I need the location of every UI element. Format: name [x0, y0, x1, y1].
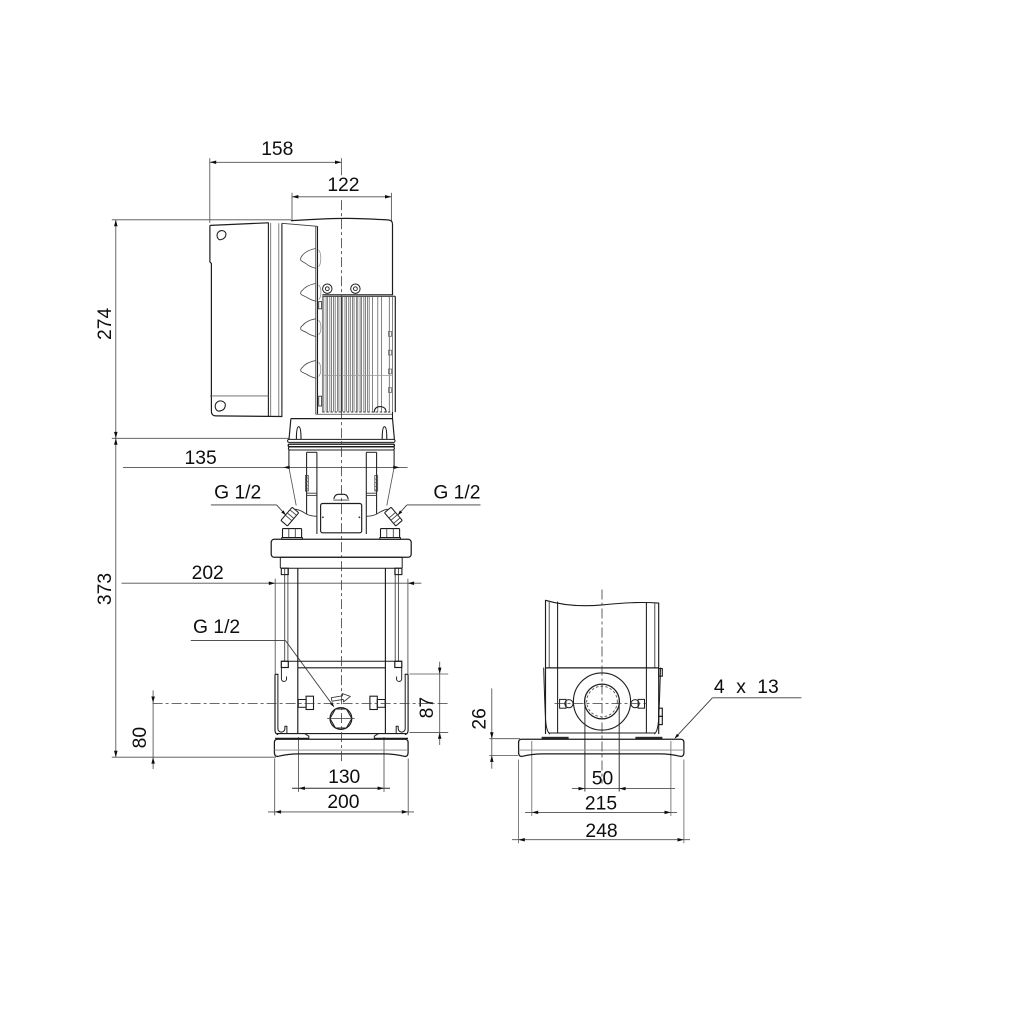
svg-text:50: 50: [592, 769, 613, 790]
svg-text:x: x: [736, 677, 746, 698]
svg-text:158: 158: [261, 139, 293, 160]
svg-text:274: 274: [95, 308, 116, 340]
svg-text:G 1/2: G 1/2: [433, 482, 480, 503]
svg-text:248: 248: [585, 821, 617, 842]
svg-text:4: 4: [714, 677, 725, 698]
svg-text:G 1/2: G 1/2: [214, 482, 261, 503]
svg-text:202: 202: [192, 563, 224, 584]
svg-text:215: 215: [585, 794, 617, 815]
svg-text:G 1/2: G 1/2: [193, 617, 240, 638]
svg-text:373: 373: [95, 573, 116, 605]
svg-text:80: 80: [130, 727, 151, 748]
svg-text:135: 135: [185, 448, 217, 469]
svg-text:87: 87: [417, 697, 438, 718]
svg-text:200: 200: [327, 792, 359, 813]
svg-text:130: 130: [328, 767, 360, 788]
svg-text:13: 13: [757, 677, 778, 698]
svg-text:26: 26: [469, 708, 490, 729]
svg-text:122: 122: [327, 175, 359, 196]
